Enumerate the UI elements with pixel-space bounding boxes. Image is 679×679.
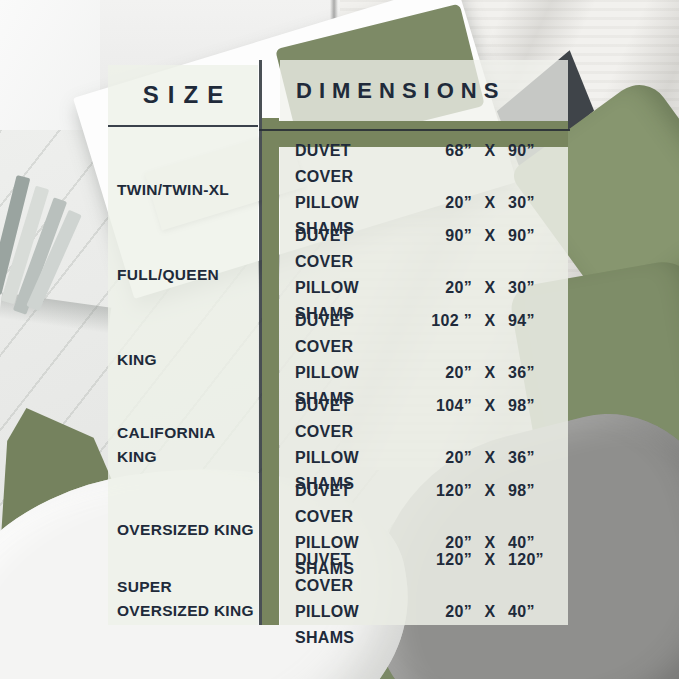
header-divider-line bbox=[259, 129, 570, 131]
dimension-separator: X bbox=[472, 223, 508, 249]
dimension-item-label: DUVET COVER bbox=[295, 393, 410, 445]
size-label: KING bbox=[117, 445, 258, 469]
size-row: TWIN/TWIN-XL bbox=[108, 147, 258, 232]
size-row: OVERSIZED KING bbox=[108, 487, 258, 572]
product-size-chart-image: SIZE TWIN/TWIN-XLFULL/QUEENKINGCALIFORNI… bbox=[0, 0, 679, 679]
dimension-width-value: 104” bbox=[410, 393, 472, 419]
dimension-height-value: 90” bbox=[508, 138, 568, 164]
dimension-width-value: 20” bbox=[410, 190, 472, 216]
dimension-separator: X bbox=[472, 360, 508, 386]
dimensions-row: DUVET COVER90”X90”PILLOW SHAMS20”X30” bbox=[280, 232, 568, 317]
dimensions-rows: DUVET COVER68”X90”PILLOW SHAMS20”X30”DUV… bbox=[280, 147, 568, 625]
duvet-cover-line: DUVET COVER120”X98” bbox=[280, 478, 568, 530]
dimension-separator: X bbox=[472, 547, 508, 573]
dimension-separator: X bbox=[472, 445, 508, 471]
dimension-item-label: PILLOW SHAMS bbox=[295, 599, 410, 651]
size-column-header: SIZE bbox=[108, 65, 258, 127]
size-label: FULL/QUEEN bbox=[117, 263, 258, 287]
duvet-cover-line: DUVET COVER68”X90” bbox=[280, 138, 568, 190]
size-label: SUPER bbox=[117, 575, 258, 599]
dimensions-row: DUVET COVER102 ”X94”PILLOW SHAMS20”X36” bbox=[280, 317, 568, 402]
dimensions-row: DUVET COVER104”X98”PILLOW SHAMS20”X36” bbox=[280, 402, 568, 487]
dimension-separator: X bbox=[472, 393, 508, 419]
dimension-height-value: 98” bbox=[508, 478, 568, 504]
dimension-height-value: 30” bbox=[508, 275, 568, 301]
size-label: OVERSIZED KING bbox=[117, 599, 258, 623]
dimension-height-value: 36” bbox=[508, 445, 568, 471]
size-label: TWIN/TWIN-XL bbox=[117, 178, 258, 202]
size-label: CALIFORNIA bbox=[117, 421, 258, 445]
dimensions-column-header: DIMENSIONS bbox=[280, 60, 568, 121]
size-label: KING bbox=[117, 348, 258, 372]
duvet-cover-line: DUVET COVER104”X98” bbox=[280, 393, 568, 445]
dimension-width-value: 20” bbox=[410, 360, 472, 386]
dimension-item-label: DUVET COVER bbox=[295, 547, 410, 599]
dimensions-row: DUVET COVER120”X120”PILLOW SHAMS20”X40” bbox=[280, 572, 568, 625]
dimension-width-value: 120” bbox=[410, 547, 472, 573]
dimension-height-value: 90” bbox=[508, 223, 568, 249]
dimension-width-value: 20” bbox=[410, 599, 472, 625]
size-label: OVERSIZED KING bbox=[117, 518, 258, 542]
dimension-width-value: 90” bbox=[410, 223, 472, 249]
dimension-height-value: 40” bbox=[508, 599, 568, 625]
pillow-shams-line: PILLOW SHAMS20”X40” bbox=[280, 599, 568, 651]
duvet-cover-line: DUVET COVER90”X90” bbox=[280, 223, 568, 275]
dimension-height-value: 94” bbox=[508, 308, 568, 334]
dimension-separator: X bbox=[472, 599, 508, 625]
dimension-separator: X bbox=[472, 478, 508, 504]
dimension-item-label: DUVET COVER bbox=[295, 223, 410, 275]
size-row: SUPEROVERSIZED KING bbox=[108, 572, 258, 625]
dimension-item-label: DUVET COVER bbox=[295, 478, 410, 530]
dimensions-row: DUVET COVER68”X90”PILLOW SHAMS20”X30” bbox=[280, 147, 568, 232]
duvet-cover-line: DUVET COVER102 ”X94” bbox=[280, 308, 568, 360]
duvet-cover-line: DUVET COVER120”X120” bbox=[280, 547, 568, 599]
dimension-separator: X bbox=[472, 190, 508, 216]
size-row: CALIFORNIAKING bbox=[108, 402, 258, 487]
size-row: FULL/QUEEN bbox=[108, 232, 258, 317]
dimension-width-value: 102 ” bbox=[410, 308, 472, 334]
dimension-separator: X bbox=[472, 275, 508, 301]
dimension-height-value: 120” bbox=[508, 547, 568, 573]
dimension-height-value: 98” bbox=[508, 393, 568, 419]
size-column-panel: SIZE TWIN/TWIN-XLFULL/QUEENKINGCALIFORNI… bbox=[108, 65, 258, 625]
size-rows: TWIN/TWIN-XLFULL/QUEENKINGCALIFORNIAKING… bbox=[108, 147, 258, 625]
dimension-width-value: 20” bbox=[410, 275, 472, 301]
dimension-height-value: 30” bbox=[508, 190, 568, 216]
dimension-width-value: 68” bbox=[410, 138, 472, 164]
dimension-width-value: 20” bbox=[410, 445, 472, 471]
dimension-separator: X bbox=[472, 138, 508, 164]
dimension-item-label: DUVET COVER bbox=[295, 138, 410, 190]
dimension-width-value: 120” bbox=[410, 478, 472, 504]
dimension-separator: X bbox=[472, 308, 508, 334]
dimension-height-value: 36” bbox=[508, 360, 568, 386]
size-row: KING bbox=[108, 317, 258, 402]
column-divider-strip bbox=[262, 118, 279, 625]
dimension-item-label: DUVET COVER bbox=[295, 308, 410, 360]
